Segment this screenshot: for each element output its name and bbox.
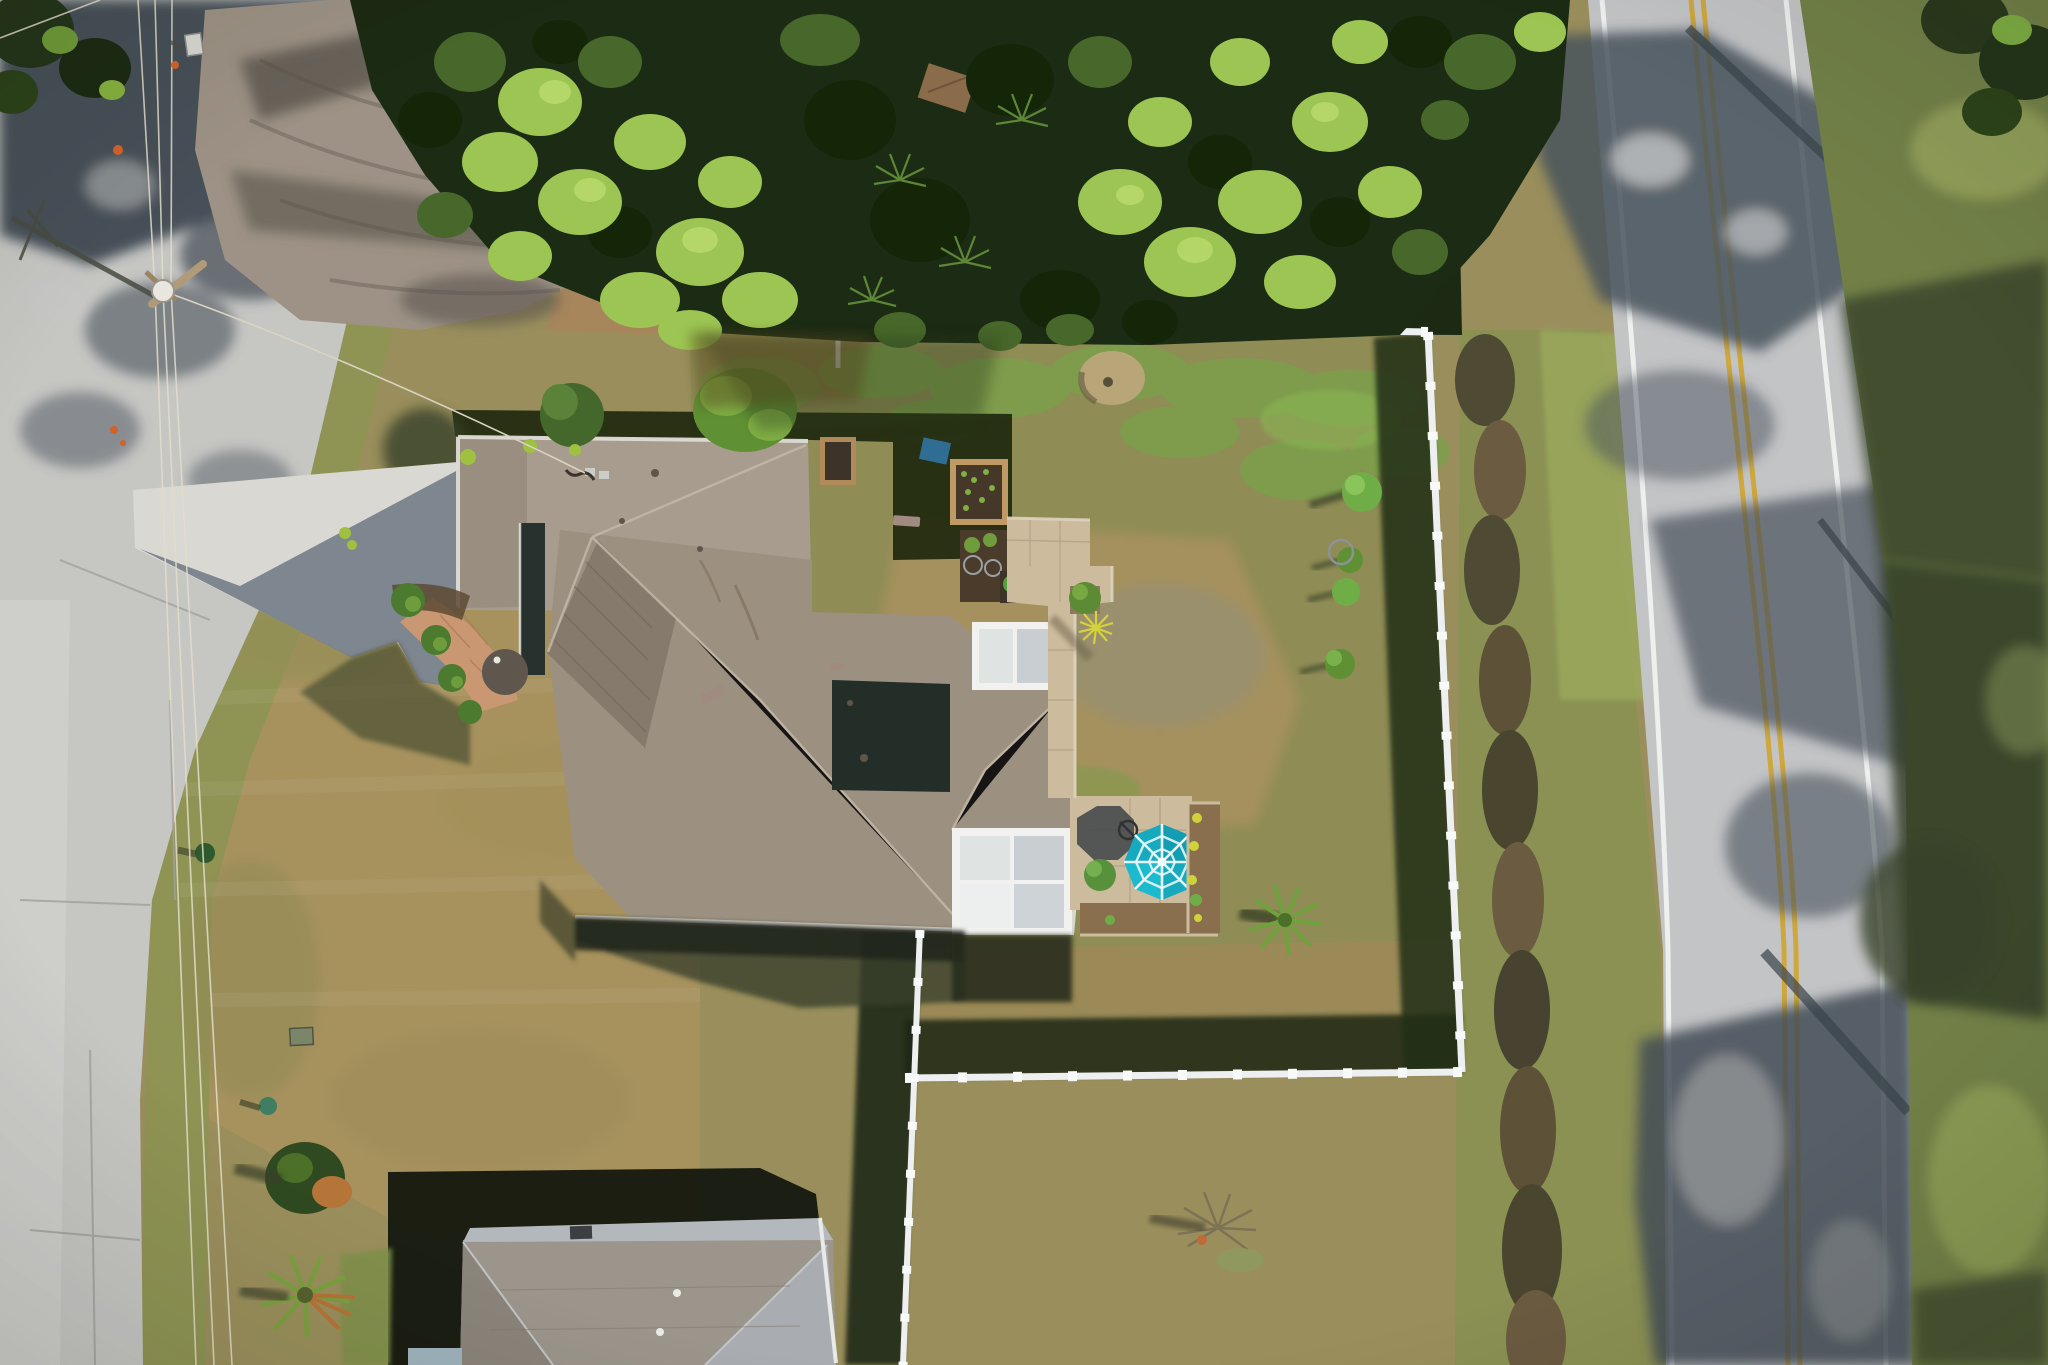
scene-canvas [0,0,2048,1365]
aerial-photo [0,0,2048,1365]
vignette [0,0,2048,1365]
